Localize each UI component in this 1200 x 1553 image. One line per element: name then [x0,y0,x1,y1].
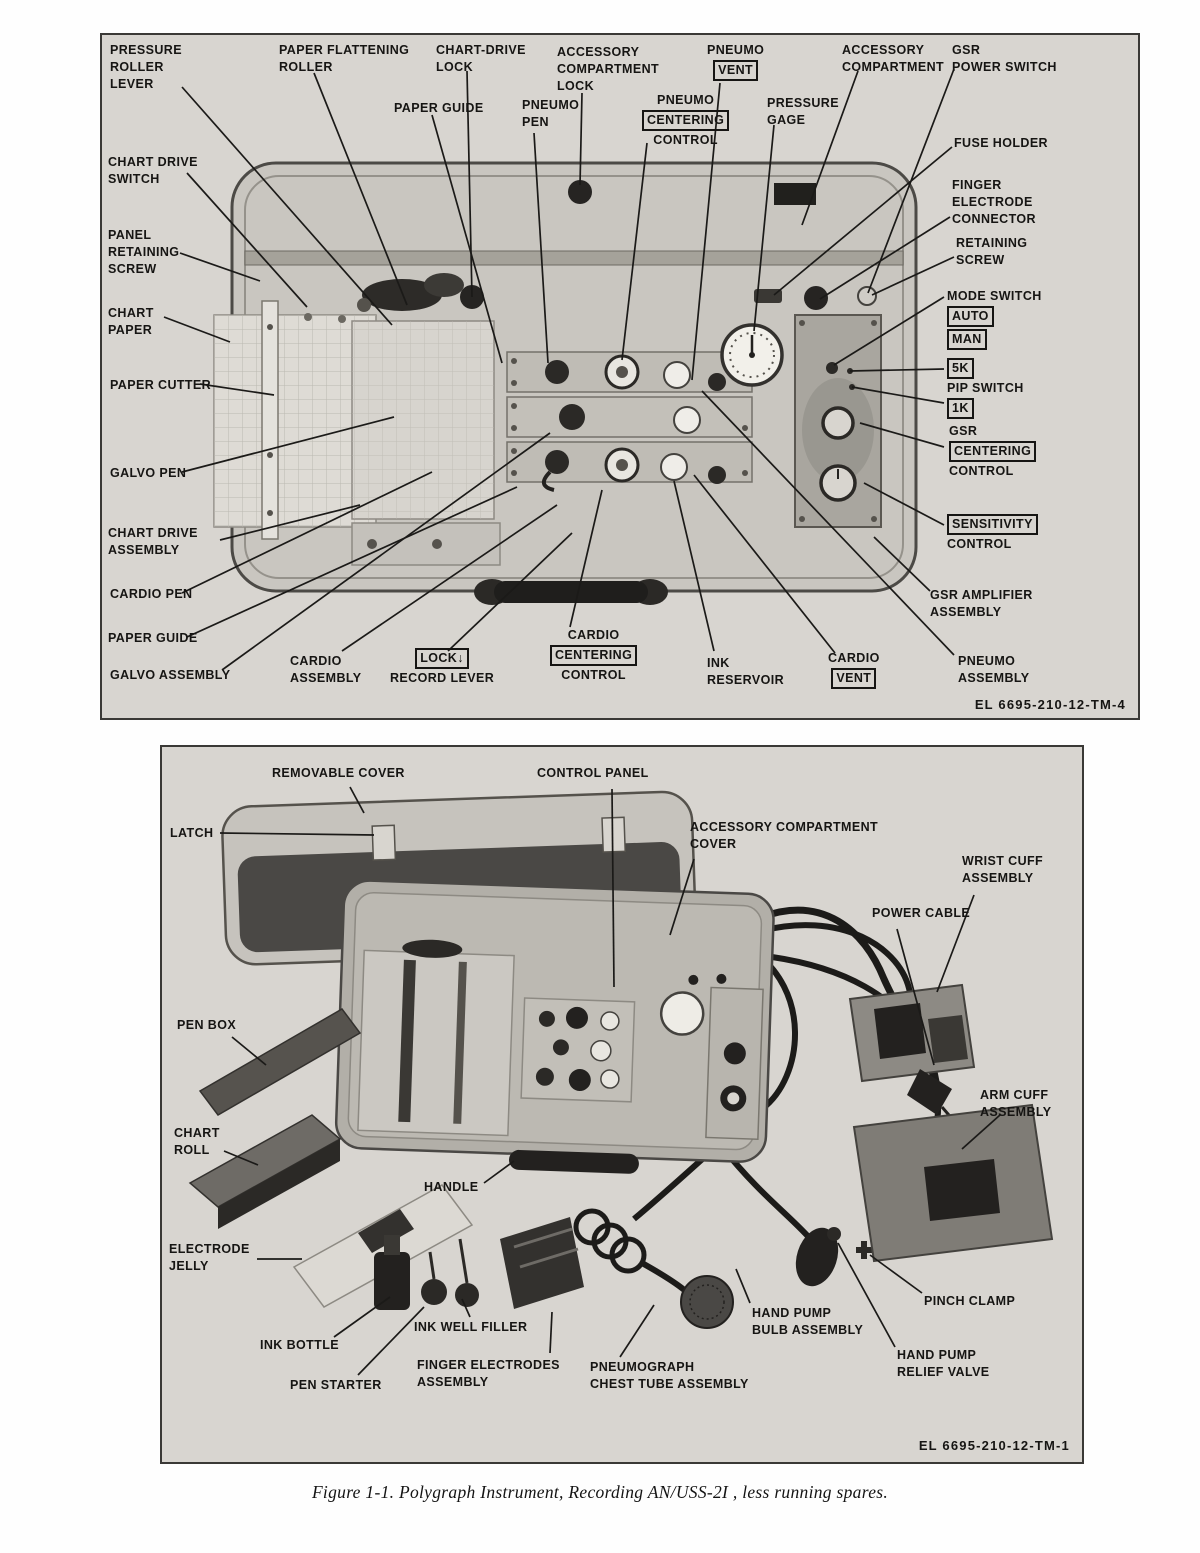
callout-chart-drive-assembly: CHART DRIVEASSEMBLY [108,525,198,559]
callout-galvo-assembly: GALVO ASSEMBLY [110,667,230,684]
callout-paper-flattening-roller: PAPER FLATTENINGROLLER [279,42,409,76]
figure-caption: Figure 1-1. Polygraph Instrument, Record… [0,1482,1200,1503]
callout-pressure-roller-lever: PRESSUREROLLERLEVER [110,42,182,93]
callout-latch: LATCH [170,825,213,842]
figure1-callouts: PRESSUREROLLERLEVERCHART DRIVESWITCHPANE… [102,35,1138,718]
callout-ink-well-filler: INK WELL FILLER [414,1319,527,1336]
callout-accessory-compartment-cover: ACCESSORY COMPARTMENTCOVER [690,819,878,853]
callout-wrist-cuff-assembly: WRIST CUFFASSEMBLY [962,853,1043,887]
callout-control-panel: CONTROL PANEL [537,765,649,782]
callout-pneumo-pen: PNEUMOPEN [522,97,579,131]
callout-chart-paper: CHARTPAPER [108,305,154,339]
callout-finger-electrodes-assembly: FINGER ELECTRODESASSEMBLY [417,1357,560,1391]
figure2-accessories-view: REMOVABLE COVERCONTROL PANELLATCHACCESSO… [160,745,1084,1464]
callout-ink-reservoir: INKRESERVOIR [707,655,784,689]
callout-pneumo-centering-control: PNEUMOCENTERINGCONTROL [642,92,729,149]
callout-hand-pump-relief-valve: HAND PUMPRELIEF VALVE [897,1347,990,1381]
callout-cardio-centering-control: CARDIOCENTERINGCONTROL [550,627,637,684]
callout-pen-starter: PEN STARTER [290,1377,382,1394]
callout-panel-retaining-screw: PANELRETAININGSCREW [108,227,179,278]
callout-finger-electrode-connector: FINGERELECTRODECONNECTOR [952,177,1036,228]
callout-accessory-compartment: ACCESSORYCOMPARTMENT [842,42,944,76]
manual-page: PRESSUREROLLERLEVERCHART DRIVESWITCHPANE… [0,0,1200,1553]
callout-sensitivity-control: SENSITIVITYCONTROL [947,513,1038,553]
callout-lock-record-lever: LOCK↓RECORD LEVER [390,647,494,687]
callout-gsr-centering-control: GSRCENTERINGCONTROL [949,423,1036,480]
callout-paper-cutter: PAPER CUTTER [110,377,211,394]
callout-pinch-clamp: PINCH CLAMP [924,1293,1015,1310]
callout-pen-box: PEN BOX [177,1017,236,1034]
callout-fuse-holder: FUSE HOLDER [954,135,1048,152]
callout-pneumograph-chest-tube-assembly: PNEUMOGRAPHCHEST TUBE ASSEMBLY [590,1359,749,1393]
callout-retaining-screw: RETAININGSCREW [956,235,1027,269]
callout-paper-guide-top: PAPER GUIDE [394,100,484,117]
callout-accessory-compartment-lock: ACCESSORYCOMPARTMENTLOCK [557,44,659,95]
callout-hand-pump-bulb-assembly: HAND PUMPBULB ASSEMBLY [752,1305,863,1339]
callout-gsr-amplifier-assembly: GSR AMPLIFIERASSEMBLY [930,587,1033,621]
callout-pressure-gage: PRESSUREGAGE [767,95,839,129]
callout-cardio-pen: CARDIO PEN [110,586,192,603]
callout-pip-switch: 5KPIP SWITCH1K [947,357,1024,420]
callout-chart-drive-lock: CHART-DRIVELOCK [436,42,526,76]
callout-pneumo-assembly: PNEUMOASSEMBLY [958,653,1030,687]
callout-arm-cuff-assembly: ARM CUFFASSEMBLY [980,1087,1052,1121]
callout-cardio-vent: CARDIOVENT [828,650,880,690]
callout-power-cable: POWER CABLE [872,905,970,922]
callout-electrode-jelly: ELECTRODEJELLY [169,1241,250,1275]
figure1-top-panel-view: PRESSUREROLLERLEVERCHART DRIVESWITCHPANE… [100,33,1140,720]
callout-paper-guide-left: PAPER GUIDE [108,630,198,647]
figure1-plate-number: EL 6695-210-12-TM-4 [975,697,1126,712]
callout-gsr-power-switch: GSRPOWER SWITCH [952,42,1057,76]
figure2-callouts: REMOVABLE COVERCONTROL PANELLATCHACCESSO… [162,747,1082,1462]
callout-removable-cover: REMOVABLE COVER [272,765,405,782]
callout-pneumo-vent: PNEUMOVENT [707,42,764,82]
callout-mode-switch: MODE SWITCHAUTOMAN [947,288,1042,351]
callout-chart-roll: CHARTROLL [174,1125,220,1159]
callout-cardio-assembly: CARDIOASSEMBLY [290,653,362,687]
callout-galvo-pen: GALVO PEN [110,465,186,482]
callout-handle: HANDLE [424,1179,478,1196]
callout-ink-bottle: INK BOTTLE [260,1337,339,1354]
figure2-plate-number: EL 6695-210-12-TM-1 [919,1438,1070,1453]
callout-chart-drive-switch: CHART DRIVESWITCH [108,154,198,188]
